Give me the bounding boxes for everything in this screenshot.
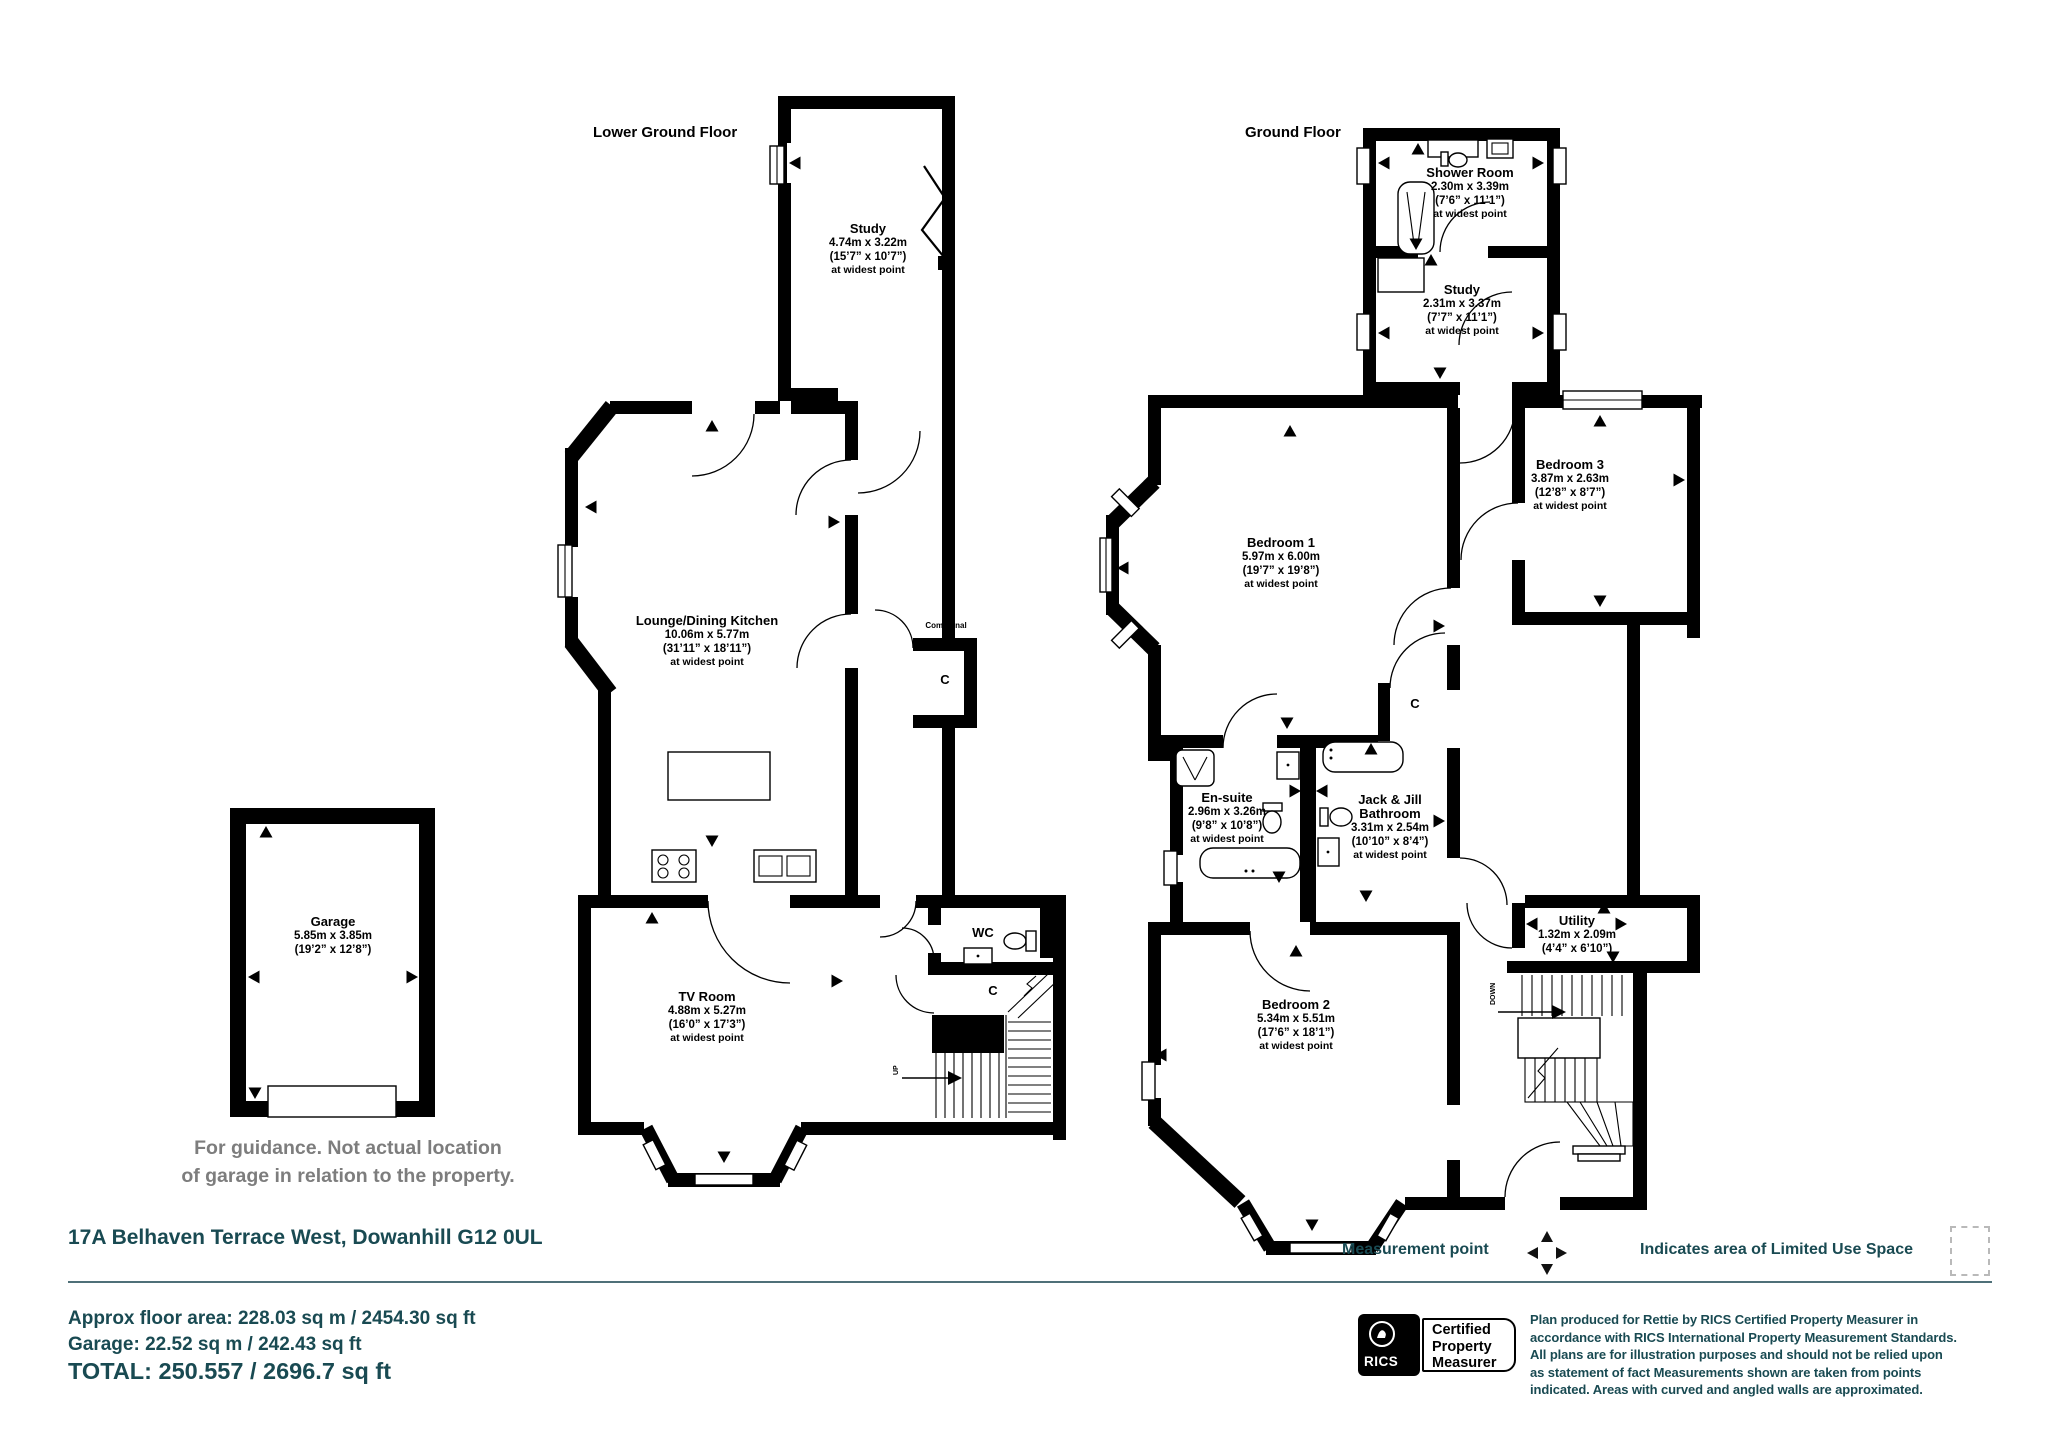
bath-icon	[1323, 742, 1403, 772]
gf-stairs	[1498, 975, 1633, 1161]
garage-guidance-note: For guidance. Not actual location of gar…	[181, 1134, 514, 1190]
garage-measurement-arrows	[248, 826, 418, 1099]
limited-use-space-label: Indicates area of Limited Use Space	[1640, 1241, 1913, 1259]
limited-use-space-icon	[1950, 1226, 1990, 1276]
total-area: TOTAL: 250.557 / 2696.7 sq ft	[68, 1358, 391, 1385]
room-label-study-lgf: Study 4.74m x 3.22m (15’7” x 10’7”) at w…	[829, 222, 907, 277]
approx-floor-area: Approx floor area: 228.03 sq m / 2454.30…	[68, 1308, 476, 1330]
certified-property-measurer-badge: Certified Property Measurer	[1422, 1318, 1516, 1372]
basin-icon	[1318, 838, 1339, 866]
property-address: 17A Belhaven Terrace West, Dowanhill G12…	[68, 1226, 543, 1250]
room-label-bedroom-3: Bedroom 3 3.87m x 2.63m (12’8” x 8’7”) a…	[1531, 458, 1609, 513]
toilet-icon	[1004, 931, 1036, 951]
sink-icon	[754, 850, 816, 882]
room-label-utility: Utility 1.32m x 2.09m (4’4” x 6’10”)	[1538, 914, 1616, 956]
basin-icon	[1487, 139, 1513, 158]
garage-walls	[230, 808, 435, 1117]
closet-label-communal: C	[940, 672, 949, 687]
measurement-point-icon	[1525, 1229, 1569, 1277]
room-label-jack-and-jill: Jack & Jill Bathroom 3.31m x 2.54m (10’1…	[1351, 793, 1429, 862]
footer-divider	[68, 1281, 1992, 1283]
measurement-point-label: Measurement point	[1342, 1241, 1489, 1259]
bath-icon	[1200, 848, 1300, 878]
room-label-shower-room: Shower Room 2.30m x 3.39m (7’6” x 11’1”)…	[1426, 166, 1513, 221]
basin-icon	[964, 948, 992, 964]
hob-icon	[652, 850, 696, 882]
plan-disclaimer: Plan produced for Rettie by RICS Certifi…	[1530, 1311, 1960, 1399]
garage-plan	[230, 808, 435, 1117]
room-label-study-gf: Study 2.31m x 3.37m (7’7” x 11’1”) at wi…	[1423, 283, 1501, 338]
closet-label-lgf: C	[988, 983, 997, 998]
kitchen-island	[668, 752, 770, 800]
room-label-bedroom-1: Bedroom 1 5.97m x 6.00m (19’7” x 19’8”) …	[1242, 536, 1320, 591]
room-label-ensuite: En-suite 2.96m x 3.26m (9’8” x 10’8”) at…	[1188, 791, 1266, 846]
room-label-garage: Garage 5.85m x 3.85m (19’2” x 12’8”)	[294, 915, 372, 957]
closet-label-gf: C	[1410, 696, 1419, 711]
ground-floor-plan	[1100, 128, 1702, 1253]
lower-ground-floor-title: Lower Ground Floor	[593, 124, 737, 141]
shower-tray-icon	[1176, 750, 1214, 786]
rics-lion-icon	[1358, 1314, 1420, 1354]
room-label-tv-room: TV Room 4.88m x 5.27m (16’0” x 17’3”) at…	[668, 990, 746, 1045]
stairs-up-label: UP	[893, 1065, 900, 1075]
lower-ground-floor-plan	[558, 96, 1066, 1185]
garage-door	[268, 1086, 396, 1117]
garage-area: Garage: 22.52 sq m / 242.43 sq ft	[68, 1334, 362, 1356]
floorplan-page: Lower Ground Floor Ground Floor Study 4.…	[0, 0, 2048, 1448]
gf-measurement-arrows	[1117, 143, 1685, 1231]
room-label-lounge: Lounge/Dining Kitchen 10.06m x 5.77m (31…	[636, 614, 778, 669]
rics-logo: RICS	[1358, 1314, 1420, 1376]
room-label-wc: WC	[972, 925, 994, 940]
room-label-bedroom-2: Bedroom 2 5.34m x 5.51m (17’6” x 18’1”) …	[1257, 998, 1335, 1053]
stairs-down-label: DOWN	[1490, 983, 1497, 1005]
ground-floor-title: Ground Floor	[1245, 124, 1341, 141]
wardrobe-icon	[1378, 258, 1424, 292]
lgf-door-arcs	[692, 414, 934, 1013]
basin-icon	[1277, 752, 1299, 779]
label-communal: Communal	[925, 621, 966, 630]
toilet-icon	[1320, 808, 1352, 826]
